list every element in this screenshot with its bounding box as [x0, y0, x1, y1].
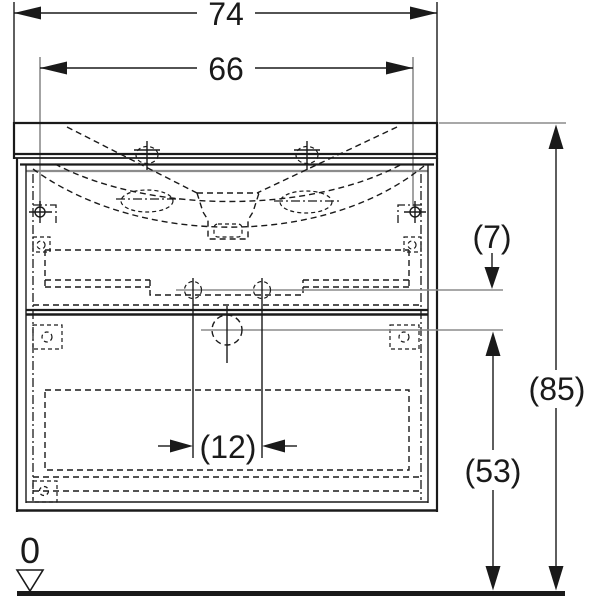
drain-funnel-inner: [214, 224, 242, 237]
datum-triangle-icon: [17, 570, 43, 591]
technical-drawing-page: 74 66: [0, 0, 600, 600]
anchor-right-cross: [404, 201, 426, 223]
bracket-top-right-hole: [408, 241, 416, 249]
dim-74-arrow-right: [410, 7, 437, 20]
bowl-inner-arc: [55, 164, 402, 202]
dim-74-label: 74: [208, 0, 244, 32]
washbasin: [14, 122, 437, 171]
dim-7-arrow-down: [485, 267, 500, 289]
basin-bowl-hidden: [33, 127, 424, 239]
datum-zero: 0: [17, 530, 43, 591]
drain-funnel: [197, 193, 259, 239]
bowl-outer-arc: [33, 166, 424, 227]
upper-drawer-hidden: [33, 237, 421, 295]
bowl-corner-diagonal-left: [67, 127, 197, 193]
dim-66-arrow-right: [386, 62, 413, 75]
bracket-mid-right-hole: [399, 332, 409, 342]
dim-74-arrow-left: [14, 7, 41, 20]
overflow-left: [121, 190, 173, 212]
overflow-right: [280, 191, 332, 213]
lower-drawer-bottom-lines: [33, 477, 421, 491]
dimension-supply-drain-offset: (7): [472, 219, 511, 289]
bracket-top-left-hole: [37, 241, 45, 249]
dim-53-arrow-up: [486, 332, 501, 357]
datum-zero-label: 0: [20, 530, 40, 571]
bowl-corner-diagonal-right: [257, 127, 397, 193]
upper-drawer-siphon-recess: [150, 280, 303, 295]
dim-85-arrow-up: [549, 125, 564, 150]
dim-66-label: 66: [208, 51, 244, 87]
upper-drawer-bottom-left: [45, 280, 150, 287]
dimension-drain-height: (53): [465, 332, 522, 591]
dimension-basin-height: (85): [439, 123, 585, 591]
technical-drawing-canvas: 74 66: [0, 0, 600, 600]
upper-drawer-bottom-right: [303, 280, 409, 287]
bracket-mid-right: [390, 325, 419, 349]
tap-hole-axes: [134, 141, 320, 170]
bracket-mid-left: [33, 325, 62, 349]
dim-7-label: (7): [472, 219, 511, 255]
wall-anchor-right: [398, 201, 426, 223]
dim-85-label: (85): [529, 371, 586, 407]
dim-66-arrow-left: [40, 62, 67, 75]
supply-valves: [176, 282, 503, 299]
dim-53-label: (53): [465, 453, 522, 489]
dim-12-arrow-right: [262, 440, 285, 453]
dim-85-arrow-down: [549, 566, 564, 591]
dim-53-arrow-down: [486, 566, 501, 591]
dim-12-label: (12): [200, 429, 257, 465]
dimension-fixing-width: 66: [40, 51, 413, 206]
upper-drawer-box: [45, 250, 409, 287]
bracket-mid-left-hole: [42, 332, 52, 342]
dim-12-arrow-left: [170, 440, 193, 453]
